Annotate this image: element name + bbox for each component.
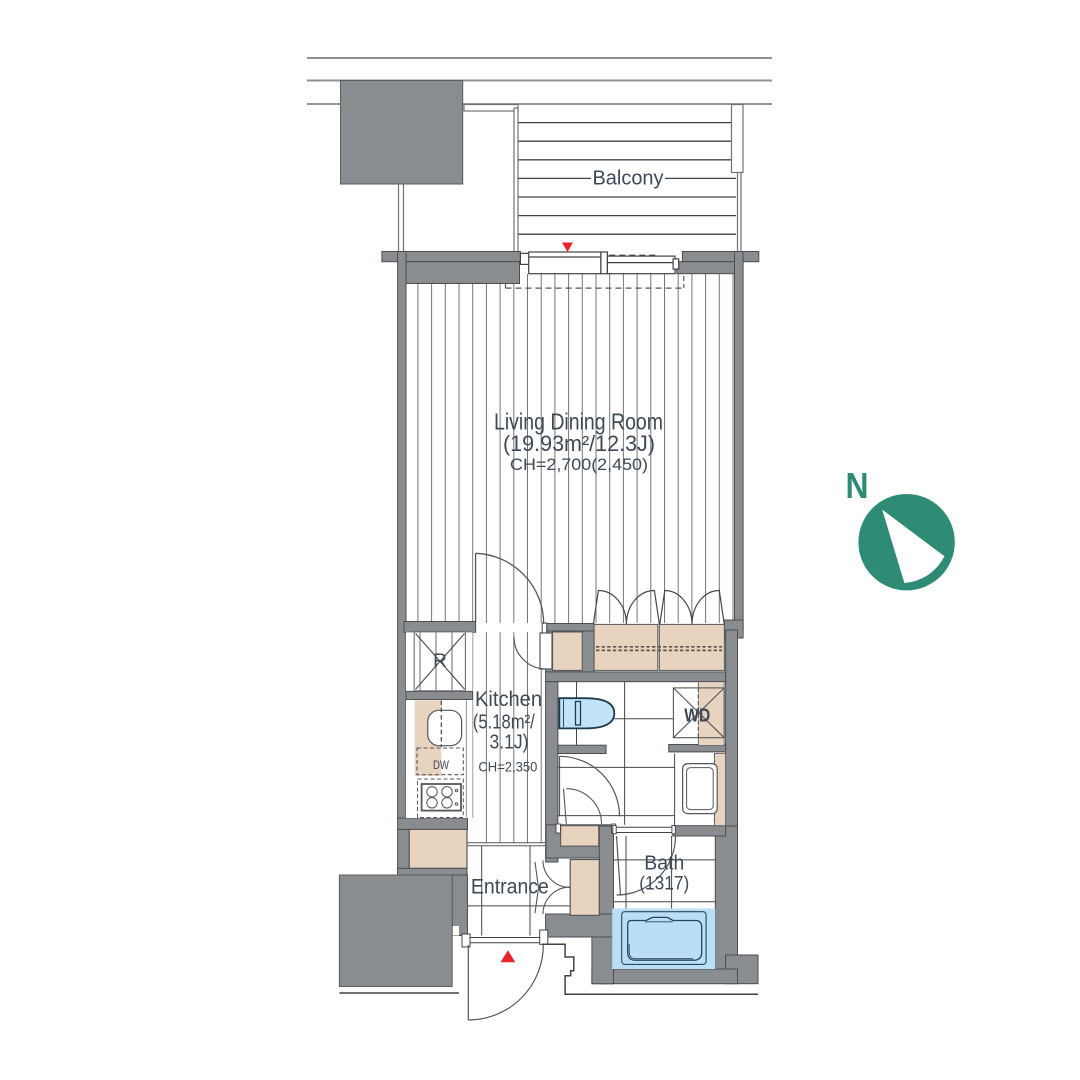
svg-text:R: R (433, 651, 447, 672)
svg-text:CH=2,700(2,450): CH=2,700(2,450) (510, 455, 648, 474)
svg-text:N: N (846, 465, 869, 506)
svg-text:(19.93m²/12.3J): (19.93m²/12.3J) (503, 431, 655, 456)
svg-text:Kitchen: Kitchen (475, 688, 542, 711)
svg-text:Entrance: Entrance (471, 876, 549, 899)
svg-text:WD: WD (684, 706, 710, 726)
svg-text:(1317): (1317) (639, 874, 689, 895)
svg-text:(5.18m²/: (5.18m²/ (473, 712, 535, 734)
svg-text:DW: DW (433, 758, 450, 772)
svg-text:3.1J): 3.1J) (490, 732, 529, 754)
svg-text:Bath: Bath (644, 853, 684, 875)
svg-text:CH=2,350: CH=2,350 (478, 759, 537, 775)
svg-text:Balcony: Balcony (593, 168, 664, 190)
